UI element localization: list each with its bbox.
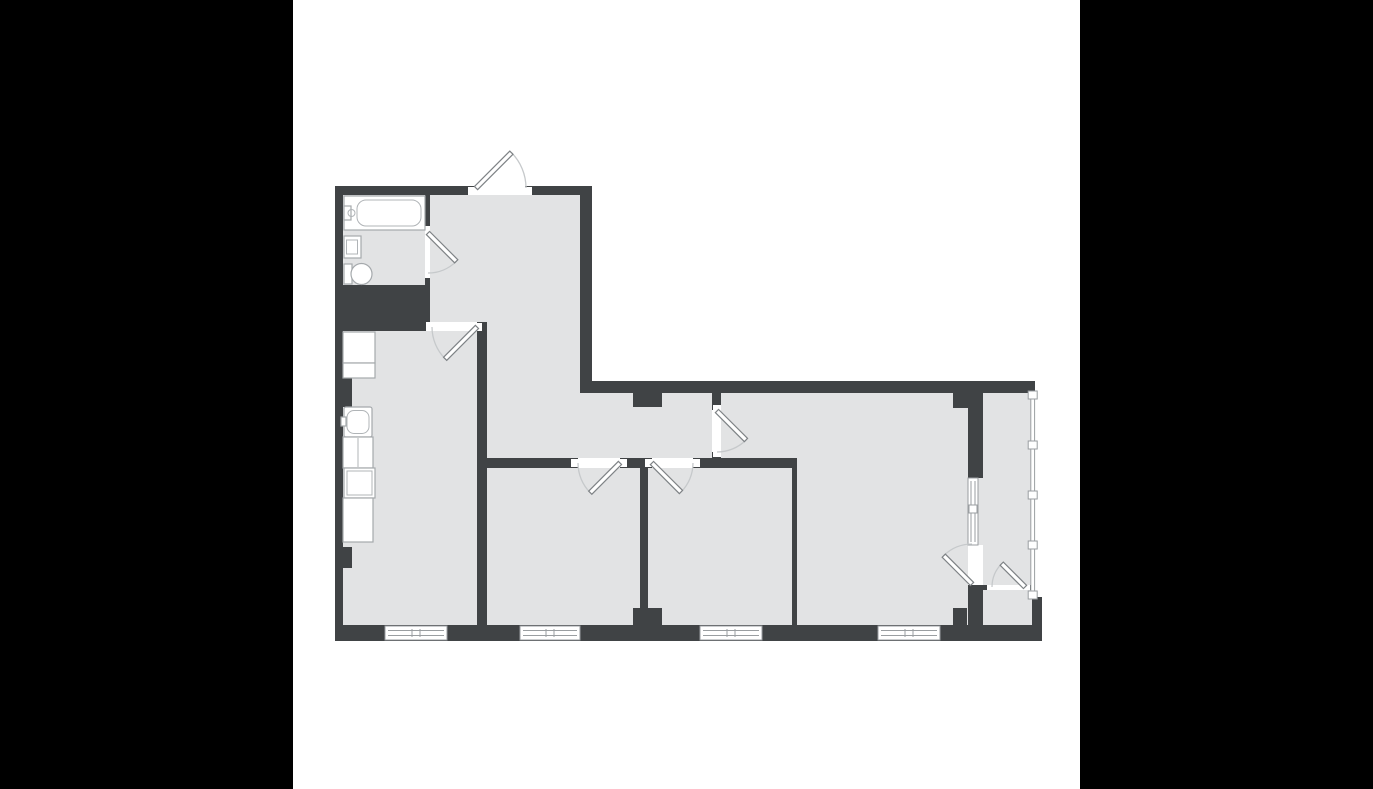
balcony-glazing-mark-5	[1028, 591, 1037, 599]
livingroom-se-protrusion	[953, 608, 967, 625]
kitchen-sink-faucet	[341, 417, 346, 426]
corridor-south-wall-a	[487, 458, 578, 468]
room2-room3-pillar	[633, 608, 662, 625]
entry-door-jamb-west	[468, 187, 475, 195]
kitchen-cabinet-c	[343, 498, 373, 542]
corridor-pillar	[633, 393, 662, 407]
livingroom-ne-protrusion	[953, 393, 968, 408]
balcony-glazing-mark-1	[1028, 391, 1037, 399]
southeast-block	[1032, 597, 1042, 640]
balcony-window-sash	[969, 505, 977, 513]
top-wall-west	[335, 186, 475, 195]
entry-doorway	[475, 186, 525, 195]
bathroom-kitchen-band	[335, 285, 430, 331]
kitchen-wall-nub-upper	[343, 378, 352, 407]
north-wall-east	[580, 381, 1035, 393]
entry-door-jamb-east	[525, 187, 532, 195]
room3-door-jamb-east	[693, 459, 700, 467]
kitchen-sink-unit	[344, 407, 372, 437]
kitchen-window-frame	[385, 626, 447, 640]
room2-room3-wall	[640, 468, 648, 608]
bathtub	[344, 196, 425, 230]
kitchen-door-jamb-west	[426, 322, 432, 331]
balcony-west-wall-lower	[968, 585, 983, 625]
floor-plan-shapes	[293, 0, 1080, 789]
livingroom-door-jamb-south	[713, 452, 721, 457]
balcony-lower-door-jamb-west	[987, 585, 992, 590]
livingroom-window-frame	[878, 626, 940, 640]
kitchen-fridge	[343, 332, 375, 363]
room2-door-jamb-west	[571, 459, 578, 467]
balcony-west-wall-upper	[968, 393, 983, 478]
livingroom-door-jamb-north	[713, 405, 721, 410]
balcony-glazing-mark-3	[1028, 491, 1037, 499]
floor-plan-svg	[0, 0, 1373, 789]
room3-window-frame	[700, 626, 762, 640]
kitchen-wall-nub-lower	[343, 547, 352, 568]
floor-left-wing	[343, 195, 591, 641]
kitchen-stove	[344, 468, 375, 498]
balcony-glazing-mark-2	[1028, 441, 1037, 449]
balcony-glazing-mark-4	[1028, 541, 1037, 549]
kitchen-cabinet-a	[343, 363, 375, 378]
kitchen-east-wall	[477, 322, 487, 641]
hall-east-wall	[580, 186, 592, 393]
room2-window-frame	[520, 626, 580, 640]
screenshot	[0, 0, 1373, 789]
west-wall	[335, 186, 343, 641]
toilet-bowl	[351, 264, 372, 285]
room3-livingroom-wall	[792, 468, 797, 625]
corridor-south-wall-c	[693, 458, 797, 468]
